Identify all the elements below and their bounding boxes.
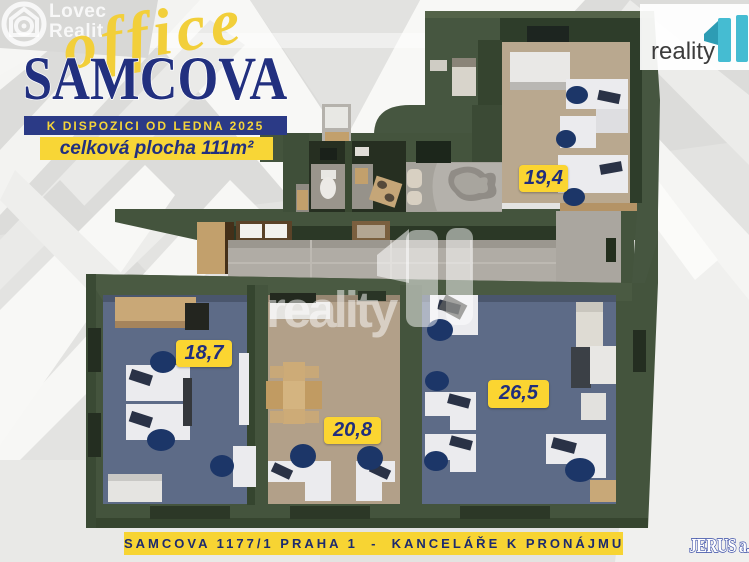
svg-text:reality: reality: [266, 281, 399, 338]
